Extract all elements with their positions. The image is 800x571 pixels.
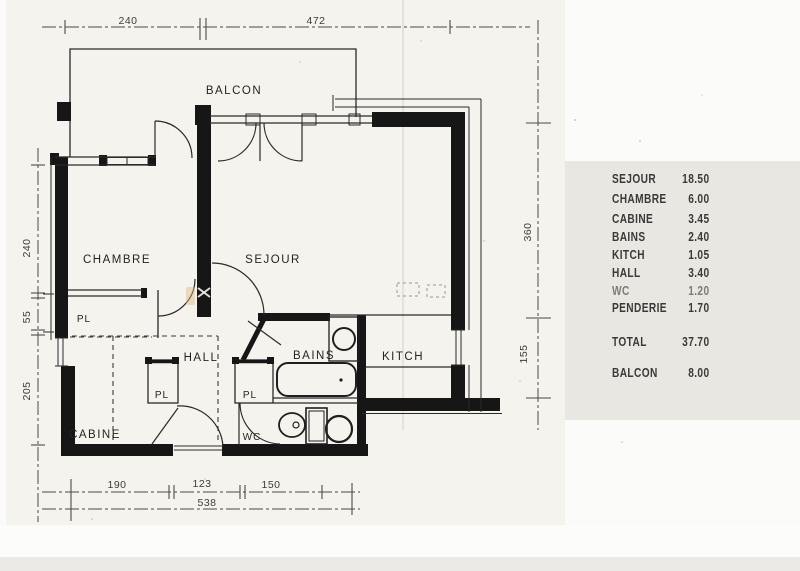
area-table: SEJOUR18.50 CHAMBRE6.00 CABINE3.45 BAINS…	[565, 161, 800, 420]
balcon-label: BALCON	[612, 365, 658, 380]
room-area: 3.40	[688, 265, 709, 280]
dim-bottom-190: 190	[107, 479, 126, 491]
scan-bottom-band	[0, 557, 800, 571]
dim-left-205: 205	[21, 381, 33, 400]
room-name: PENDERIE	[612, 300, 667, 315]
sejour-top-wall	[372, 112, 465, 127]
dim-left-55: 55	[21, 311, 33, 324]
bathtub-drain	[339, 378, 342, 381]
room-name: CHAMBRE	[612, 191, 667, 206]
table-row-balcon: BALCON8.00	[612, 365, 710, 380]
room-name: CABINE	[612, 211, 653, 226]
room-label-sejour: SEJOUR	[245, 254, 301, 266]
table-row-total: TOTAL37.70	[612, 334, 710, 349]
dim-bottom-538: 538	[197, 497, 216, 509]
table-row: CHAMBRE6.00	[612, 191, 710, 206]
balcony-pillar	[195, 105, 211, 125]
room-label-kitch: KITCH	[382, 351, 424, 363]
room-name: BAINS	[612, 229, 646, 244]
scanned-floor-plan-page: 240 472 240 55 205 360 155 190 123 150 5…	[0, 0, 800, 571]
room-label-pl-hall: PL	[155, 390, 169, 401]
table-row: KITCH1.05	[612, 247, 710, 262]
room-label-balcon: BALCON	[206, 85, 262, 97]
room-label-bains: BAINS	[293, 350, 335, 362]
table-row: BAINS2.40	[612, 229, 710, 244]
total-label: TOTAL	[612, 334, 647, 349]
room-area: 3.45	[688, 211, 709, 226]
table-row: SEJOUR18.50	[612, 171, 710, 186]
table-row: PENDERIE1.70	[612, 300, 710, 315]
room-area: 1.70	[688, 300, 709, 315]
room-label-hall: HALL	[184, 352, 219, 364]
table-row: CABINE3.45	[612, 211, 710, 226]
balcon-value: 8.00	[688, 365, 709, 380]
room-area: 1.20	[688, 283, 709, 298]
total-value: 37.70	[682, 334, 709, 349]
balcony-pillar	[57, 102, 71, 121]
dim-top-472: 472	[306, 15, 325, 27]
room-area: 18.50	[682, 171, 709, 186]
dim-bottom-150: 150	[261, 479, 280, 491]
kitchen-bottom-wall	[362, 398, 500, 411]
cabine-bottom-wall	[61, 444, 173, 456]
room-name: SEJOUR	[612, 171, 656, 186]
dim-top-240: 240	[118, 15, 137, 27]
room-label-cabine: CABINE	[69, 429, 121, 441]
table-row: WC1.20	[612, 283, 710, 298]
room-label-pl-left: PL	[77, 314, 91, 325]
right-wall-upper	[451, 127, 465, 330]
right-wall-lower	[451, 365, 465, 400]
wc-bottom-wall	[222, 444, 368, 456]
left-wall-upper	[55, 157, 68, 338]
dim-bottom-123: 123	[192, 478, 211, 490]
room-area: 2.40	[688, 229, 709, 244]
room-name: KITCH	[612, 247, 645, 262]
room-label-wc: WC	[243, 432, 262, 443]
dim-right-360: 360	[522, 222, 534, 241]
dim-right-155: 155	[518, 344, 530, 363]
room-area: 1.05	[688, 247, 709, 262]
room-name: WC	[612, 283, 630, 298]
dim-left-240: 240	[21, 238, 33, 257]
room-label-pl-wc: PL	[243, 390, 257, 401]
bains-top-wall	[258, 313, 330, 321]
room-label-chambre: CHAMBRE	[83, 254, 151, 266]
room-name: HALL	[612, 265, 641, 280]
highlight-smudge	[186, 287, 195, 305]
room-area: 6.00	[688, 191, 709, 206]
table-row: HALL3.40	[612, 265, 710, 280]
